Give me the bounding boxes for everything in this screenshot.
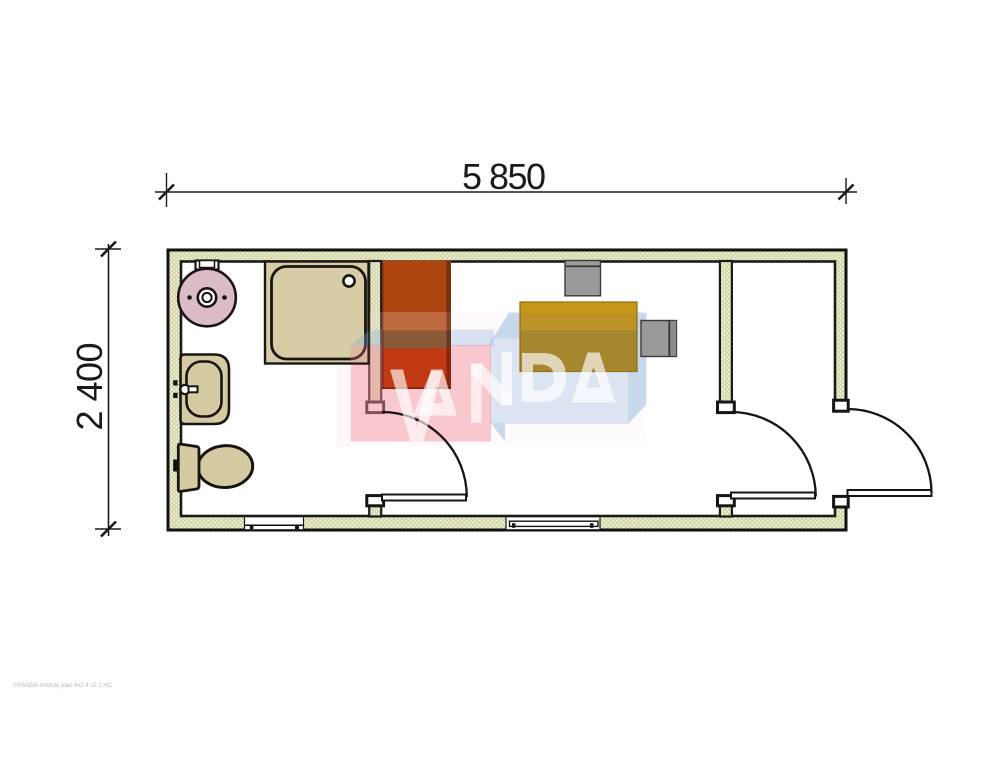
svg-text:5 850: 5 850	[462, 156, 546, 197]
svg-text:2 400: 2 400	[69, 343, 110, 431]
svg-text:©VANDA-module plan 4x2.4 v2.1: ©VANDA-module plan 4x2.4 v2.1 HC	[13, 682, 113, 689]
